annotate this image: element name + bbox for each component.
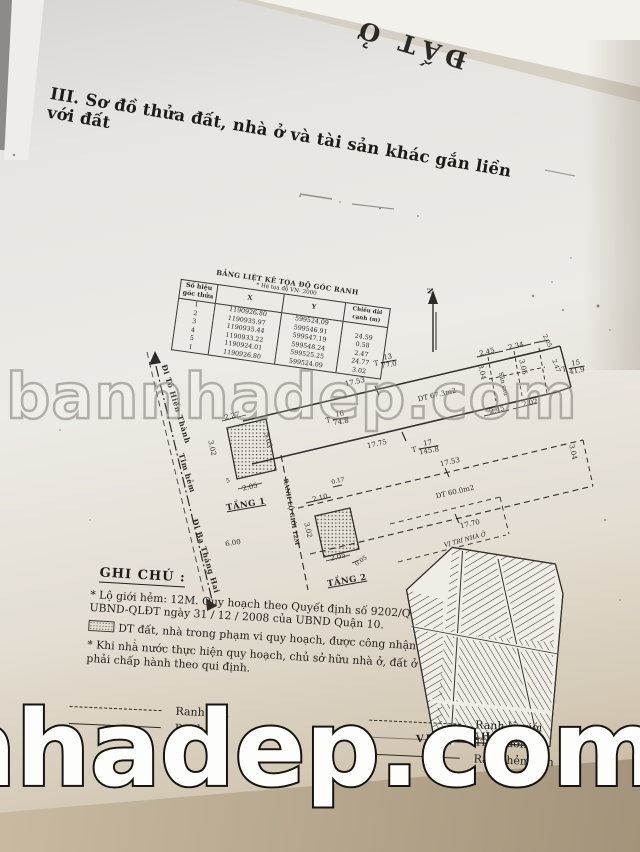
dim: 3.03	[262, 432, 273, 449]
floor1-label: TẦNG 1	[226, 497, 267, 514]
survey-point-17: T 17145.8	[410, 438, 439, 457]
dim: 3.02	[302, 522, 313, 539]
dim: 2.10	[312, 492, 329, 503]
map-pointer-label: VỊ TRÍ NHÀ Ở	[443, 531, 486, 549]
dim: 2.05	[242, 481, 259, 492]
dim: 2.34	[508, 340, 525, 351]
watermark-mid: bannhadep.com	[6, 360, 640, 433]
dim: 2.05	[541, 333, 553, 348]
corner-5: 5	[225, 477, 230, 485]
alley-dir-south: Đi Ba Tháng Hai	[190, 518, 221, 595]
setback-line-label: RANH LỘ GIỚI 12M	[282, 478, 301, 546]
dim: 17.75	[366, 438, 387, 450]
dim: 17.53	[439, 456, 460, 468]
dim: 17.70	[459, 518, 480, 530]
watermark-bottom: nhadep.com	[0, 688, 640, 810]
area-floor2: DT 60.0m2	[435, 484, 475, 501]
dim: 0.17	[331, 476, 346, 486]
dim: 2.45	[479, 346, 496, 357]
dim: 0.05	[354, 554, 369, 567]
north-letter: N	[426, 288, 435, 294]
dim: 2.05	[330, 551, 347, 562]
alley-center-label: Tim hẻm	[177, 452, 197, 493]
dim: 3.04	[567, 444, 578, 461]
dim: 3.02	[206, 440, 217, 457]
dim: 6.00	[225, 538, 242, 548]
photographed-land-document: ĐẤT Ở III. Sơ đồ thửa đất, nhà ở và tài …	[0, 0, 640, 852]
floor2-label: TẦNG 2	[327, 573, 368, 590]
